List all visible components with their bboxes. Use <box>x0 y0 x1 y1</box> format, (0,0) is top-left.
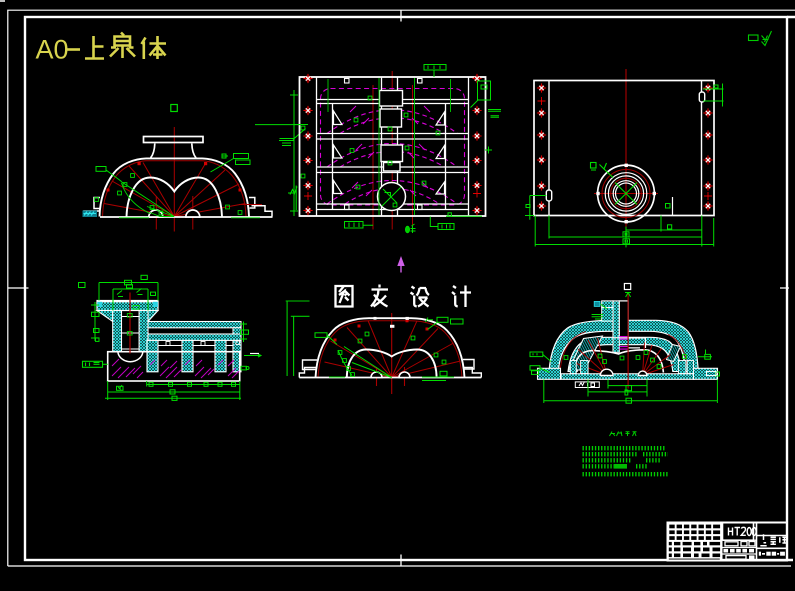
svg-text:A0: A0 <box>36 35 69 65</box>
